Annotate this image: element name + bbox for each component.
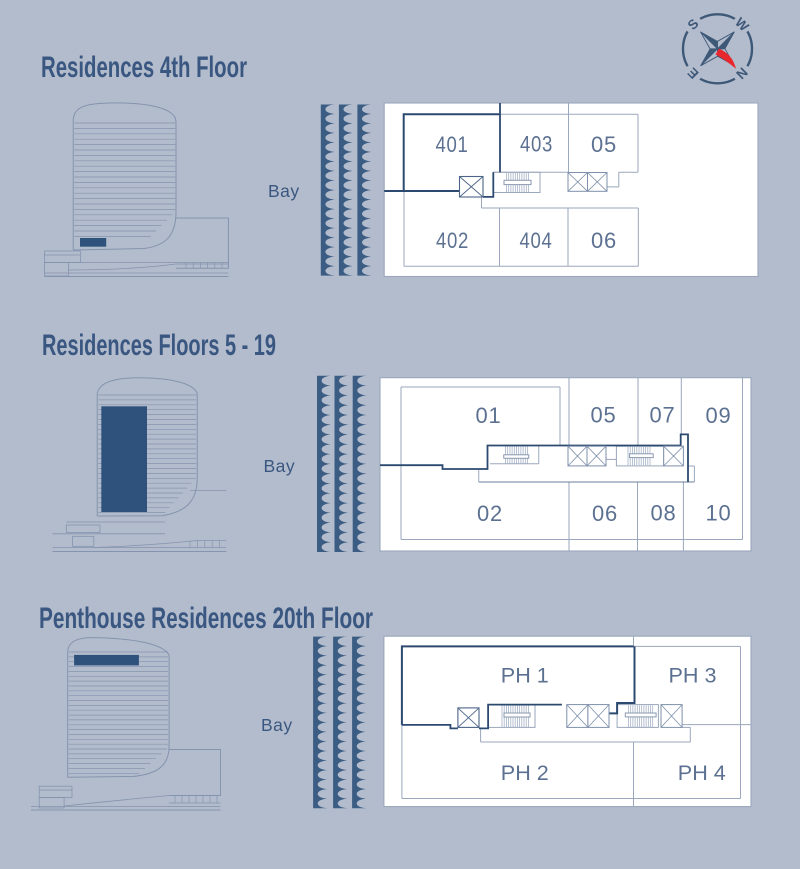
svg-text:Residences 4th Floor: Residences 4th Floor bbox=[41, 51, 247, 84]
svg-text:06: 06 bbox=[591, 228, 617, 253]
svg-text:08: 08 bbox=[651, 501, 677, 526]
svg-text:PH 3: PH 3 bbox=[669, 665, 717, 688]
svg-text:02: 02 bbox=[477, 501, 503, 526]
svg-text:403: 403 bbox=[520, 132, 553, 157]
svg-text:401: 401 bbox=[436, 132, 469, 157]
svg-text:404: 404 bbox=[520, 228, 553, 253]
svg-text:PH 1: PH 1 bbox=[501, 665, 549, 688]
svg-text:05: 05 bbox=[591, 403, 617, 428]
svg-text:01: 01 bbox=[476, 403, 502, 428]
svg-text:06: 06 bbox=[592, 501, 618, 526]
svg-text:Bay: Bay bbox=[268, 181, 300, 201]
svg-text:Bay: Bay bbox=[264, 456, 296, 476]
svg-text:09: 09 bbox=[706, 403, 732, 428]
svg-text:10: 10 bbox=[706, 501, 732, 526]
svg-text:05: 05 bbox=[591, 132, 617, 157]
svg-text:Residences Floors 5 - 19: Residences Floors 5 - 19 bbox=[42, 329, 276, 362]
svg-text:Penthouse Residences 20th Floo: Penthouse Residences 20th Floor bbox=[39, 602, 373, 635]
svg-text:PH 2: PH 2 bbox=[501, 762, 549, 785]
svg-text:Bay: Bay bbox=[261, 715, 293, 735]
svg-text:402: 402 bbox=[436, 228, 469, 253]
svg-text:PH 4: PH 4 bbox=[678, 762, 726, 785]
svg-text:07: 07 bbox=[650, 403, 676, 428]
